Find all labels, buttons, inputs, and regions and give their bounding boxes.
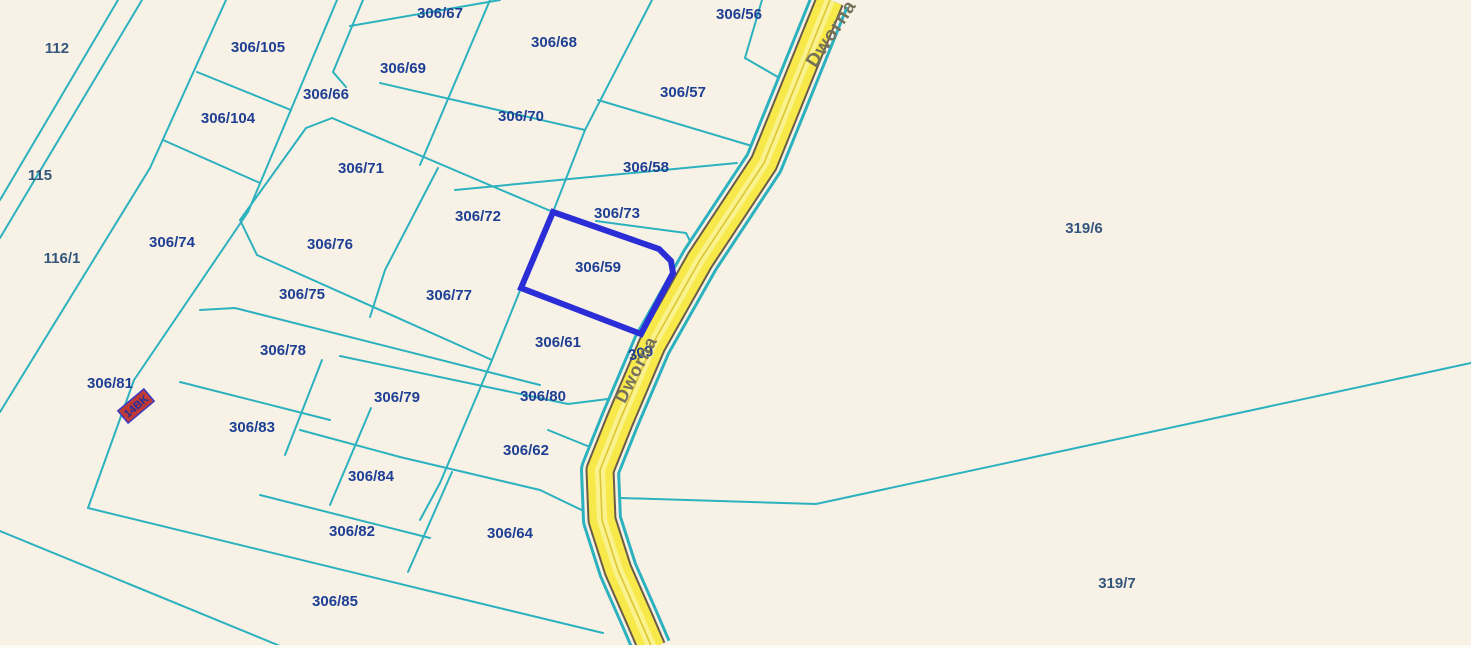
parcel-label-306-83: 306/83 <box>229 419 275 436</box>
parcel-label-306-56: 306/56 <box>716 6 762 23</box>
parcel-label-306-74: 306/74 <box>149 234 196 251</box>
parcel-label-306-76: 306/76 <box>307 236 353 253</box>
parcel-label-306-57: 306/57 <box>660 84 706 101</box>
parcel-label-306-78: 306/78 <box>260 342 306 359</box>
parcel-label-306-72: 306/72 <box>455 208 501 225</box>
parcel-label-319-6: 319/6 <box>1065 220 1103 237</box>
parcel-label-306-58: 306/58 <box>623 159 669 176</box>
parcel-label-306-104: 306/104 <box>201 110 256 127</box>
map-background <box>0 0 1471 648</box>
parcel-label-306-71: 306/71 <box>338 160 384 177</box>
parcel-label-306-73: 306/73 <box>594 205 640 222</box>
parcel-label-306-59: 306/59 <box>575 259 621 276</box>
parcel-label-306-69: 306/69 <box>380 60 426 77</box>
parcel-label-319-7: 319/7 <box>1098 575 1136 592</box>
parcel-label-306-82: 306/82 <box>329 523 375 540</box>
cadastral-map-canvas[interactable]: 14BK112115116/1306/105306/104306/74306/6… <box>0 0 1471 648</box>
parcel-label-115: 115 <box>28 167 52 184</box>
parcel-label-306-66: 306/66 <box>303 86 349 103</box>
parcel-label-306-67: 306/67 <box>417 5 463 22</box>
parcel-label-306-85: 306/85 <box>312 593 358 610</box>
parcel-label-306-64: 306/64 <box>487 525 534 542</box>
parcel-label-306-79: 306/79 <box>374 389 420 406</box>
parcel-label-306-61: 306/61 <box>535 334 581 351</box>
parcel-label-306-68: 306/68 <box>531 34 577 51</box>
parcel-label-306-62: 306/62 <box>503 442 549 459</box>
parcel-label-306-77: 306/77 <box>426 287 472 304</box>
parcel-label-116-1: 116/1 <box>44 250 81 267</box>
parcel-label-112: 112 <box>45 40 69 57</box>
cadastral-map-viewport: 14BK112115116/1306/105306/104306/74306/6… <box>0 0 1471 648</box>
parcel-label-306-70: 306/70 <box>498 108 544 125</box>
parcel-label-306-75: 306/75 <box>279 286 325 303</box>
parcel-label-306-80: 306/80 <box>520 388 566 405</box>
parcel-label-306-84: 306/84 <box>348 468 395 485</box>
parcel-label-306-105: 306/105 <box>231 39 285 56</box>
parcel-label-306-81: 306/81 <box>87 375 133 392</box>
